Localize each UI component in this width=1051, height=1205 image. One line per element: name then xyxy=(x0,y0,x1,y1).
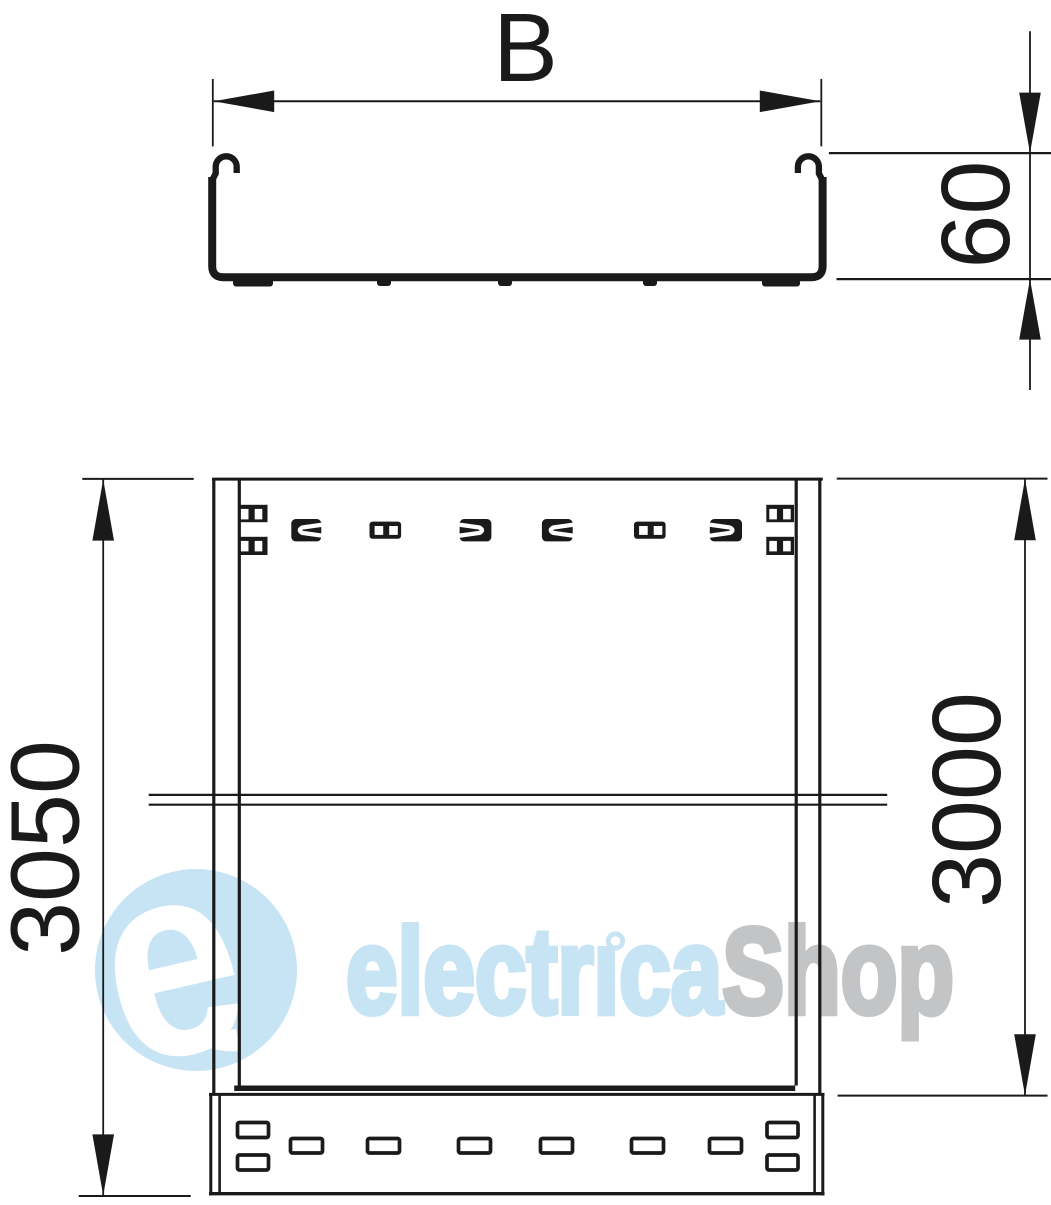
svg-text:electricaShop: electricaShop xyxy=(346,903,954,1039)
svg-text:60: 60 xyxy=(921,161,1030,269)
svg-text:B: B xyxy=(493,0,558,102)
svg-text:3050: 3050 xyxy=(0,740,100,956)
svg-text:3000: 3000 xyxy=(912,692,1021,908)
